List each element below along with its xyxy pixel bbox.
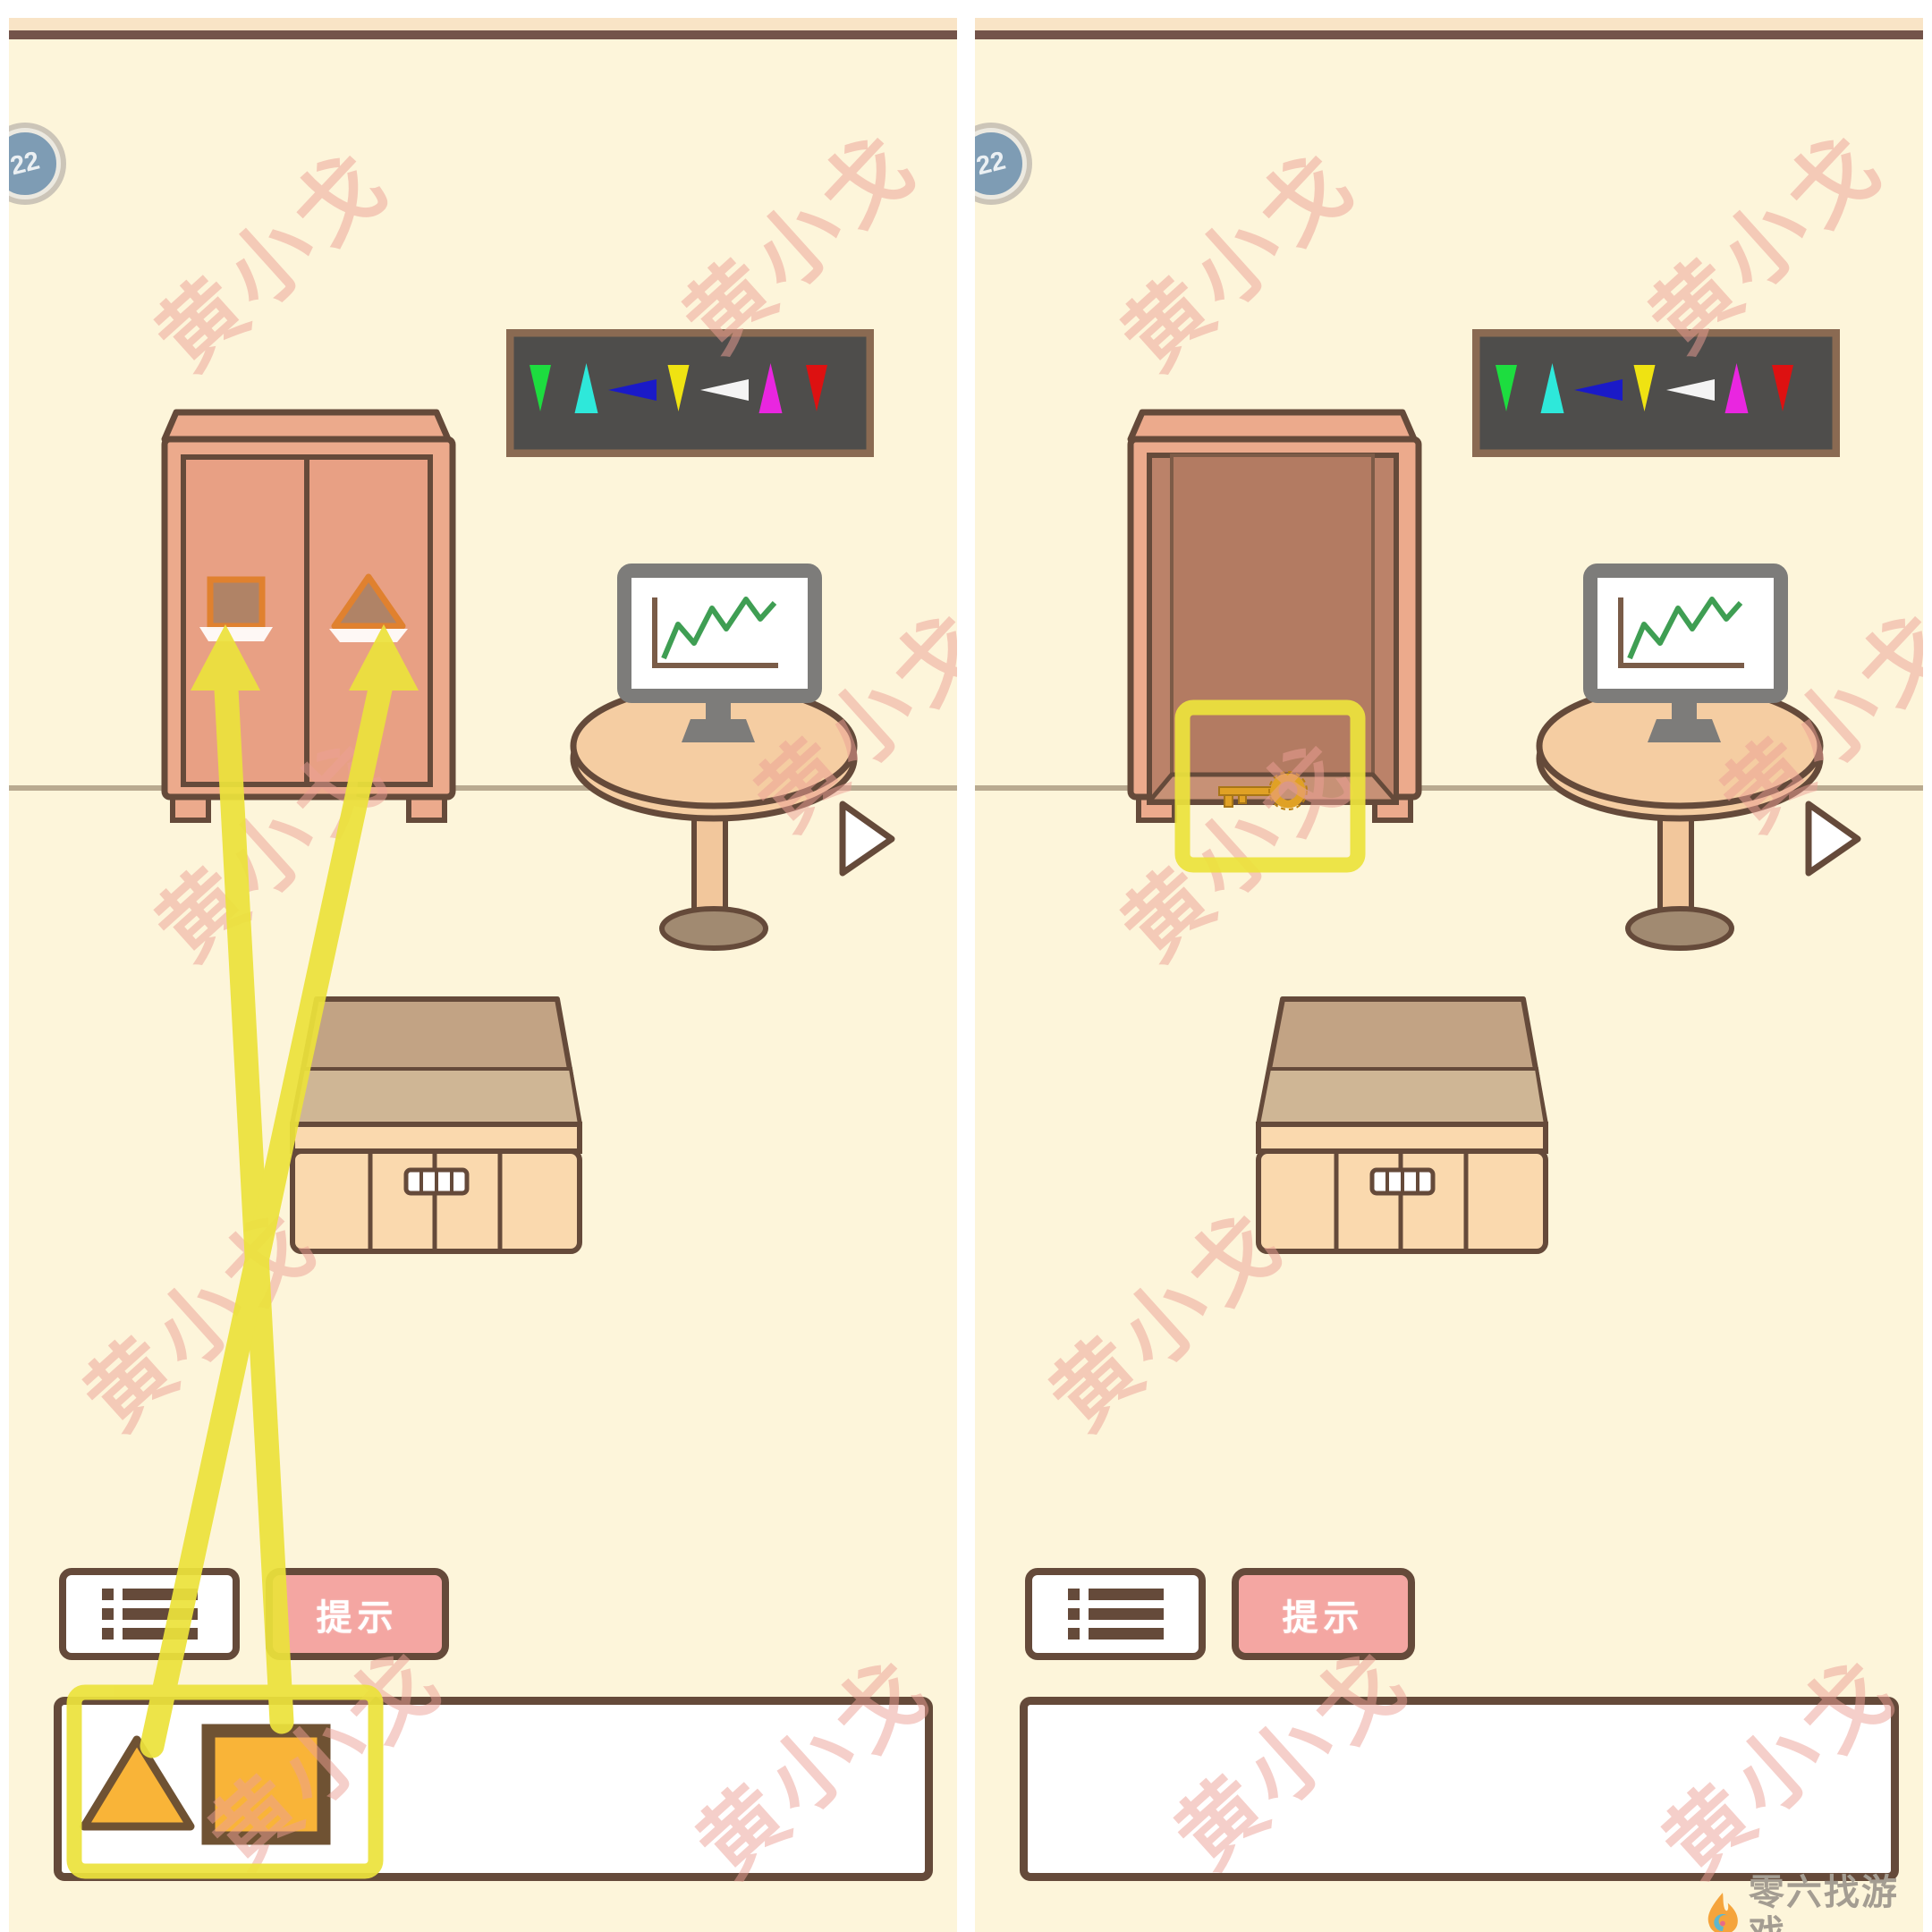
color-code-board [506,329,874,457]
table-base [662,909,766,948]
hint-button-label: 提示 [1283,1589,1365,1640]
color-code-board [1472,329,1840,457]
hint-button-label: 提示 [317,1589,399,1640]
wardrobe-back-wall [1172,455,1373,775]
box-interior-floor [1258,1069,1546,1124]
storage-box[interactable] [286,993,586,1254]
monitor-stand-base [1648,719,1721,742]
computer-table [1529,563,1887,975]
level-badge: 22 [975,123,1032,205]
ceiling-line [975,30,1923,39]
list-icon [102,1589,198,1640]
box-interior-floor [292,1069,580,1124]
computer-table [563,563,921,975]
square-hole-light [199,627,273,641]
screenshot-root: 22 [0,0,1932,1932]
table-base [1628,909,1732,948]
site-logo: 零六找游戏 www.lingliuyx.com www.06zyx.com [1704,1872,1928,1931]
monitor-stand-base [682,719,755,742]
menu-list-button[interactable] [1025,1568,1206,1660]
menu-list-button[interactable] [59,1568,240,1660]
panel-after-solution: 22 [975,18,1923,1932]
wardrobe-open[interactable] [1123,407,1427,859]
inventory-bar[interactable] [1020,1697,1899,1881]
square-hole[interactable] [210,580,262,626]
hint-button[interactable]: 提示 [1232,1568,1415,1660]
panel-before-solution: 22 [9,18,957,1932]
ceiling-strip [975,18,1923,30]
ceiling-strip [9,18,957,30]
storage-box[interactable] [1252,993,1552,1254]
hint-button[interactable]: 提示 [266,1568,449,1660]
level-number: 22 [975,146,1009,182]
triangle-hole-light [329,629,408,642]
ceiling-line [9,30,957,39]
logo-title: 零六找游戏 [1749,1872,1928,1932]
triangle-tile[interactable] [84,1740,191,1826]
inventory-items [72,1717,358,1860]
level-number: 22 [9,146,43,182]
level-badge: 22 [9,123,66,205]
square-tile[interactable] [208,1731,324,1838]
flame-icon [1704,1891,1743,1932]
next-arrow-button[interactable] [1809,804,1858,873]
next-arrow-button[interactable] [843,804,892,873]
watermark-text: 黄小戈 [1090,117,1377,394]
list-icon [1068,1589,1164,1640]
wardrobe-closed[interactable] [157,407,461,859]
watermark-text: 黄小戈 [124,117,411,394]
